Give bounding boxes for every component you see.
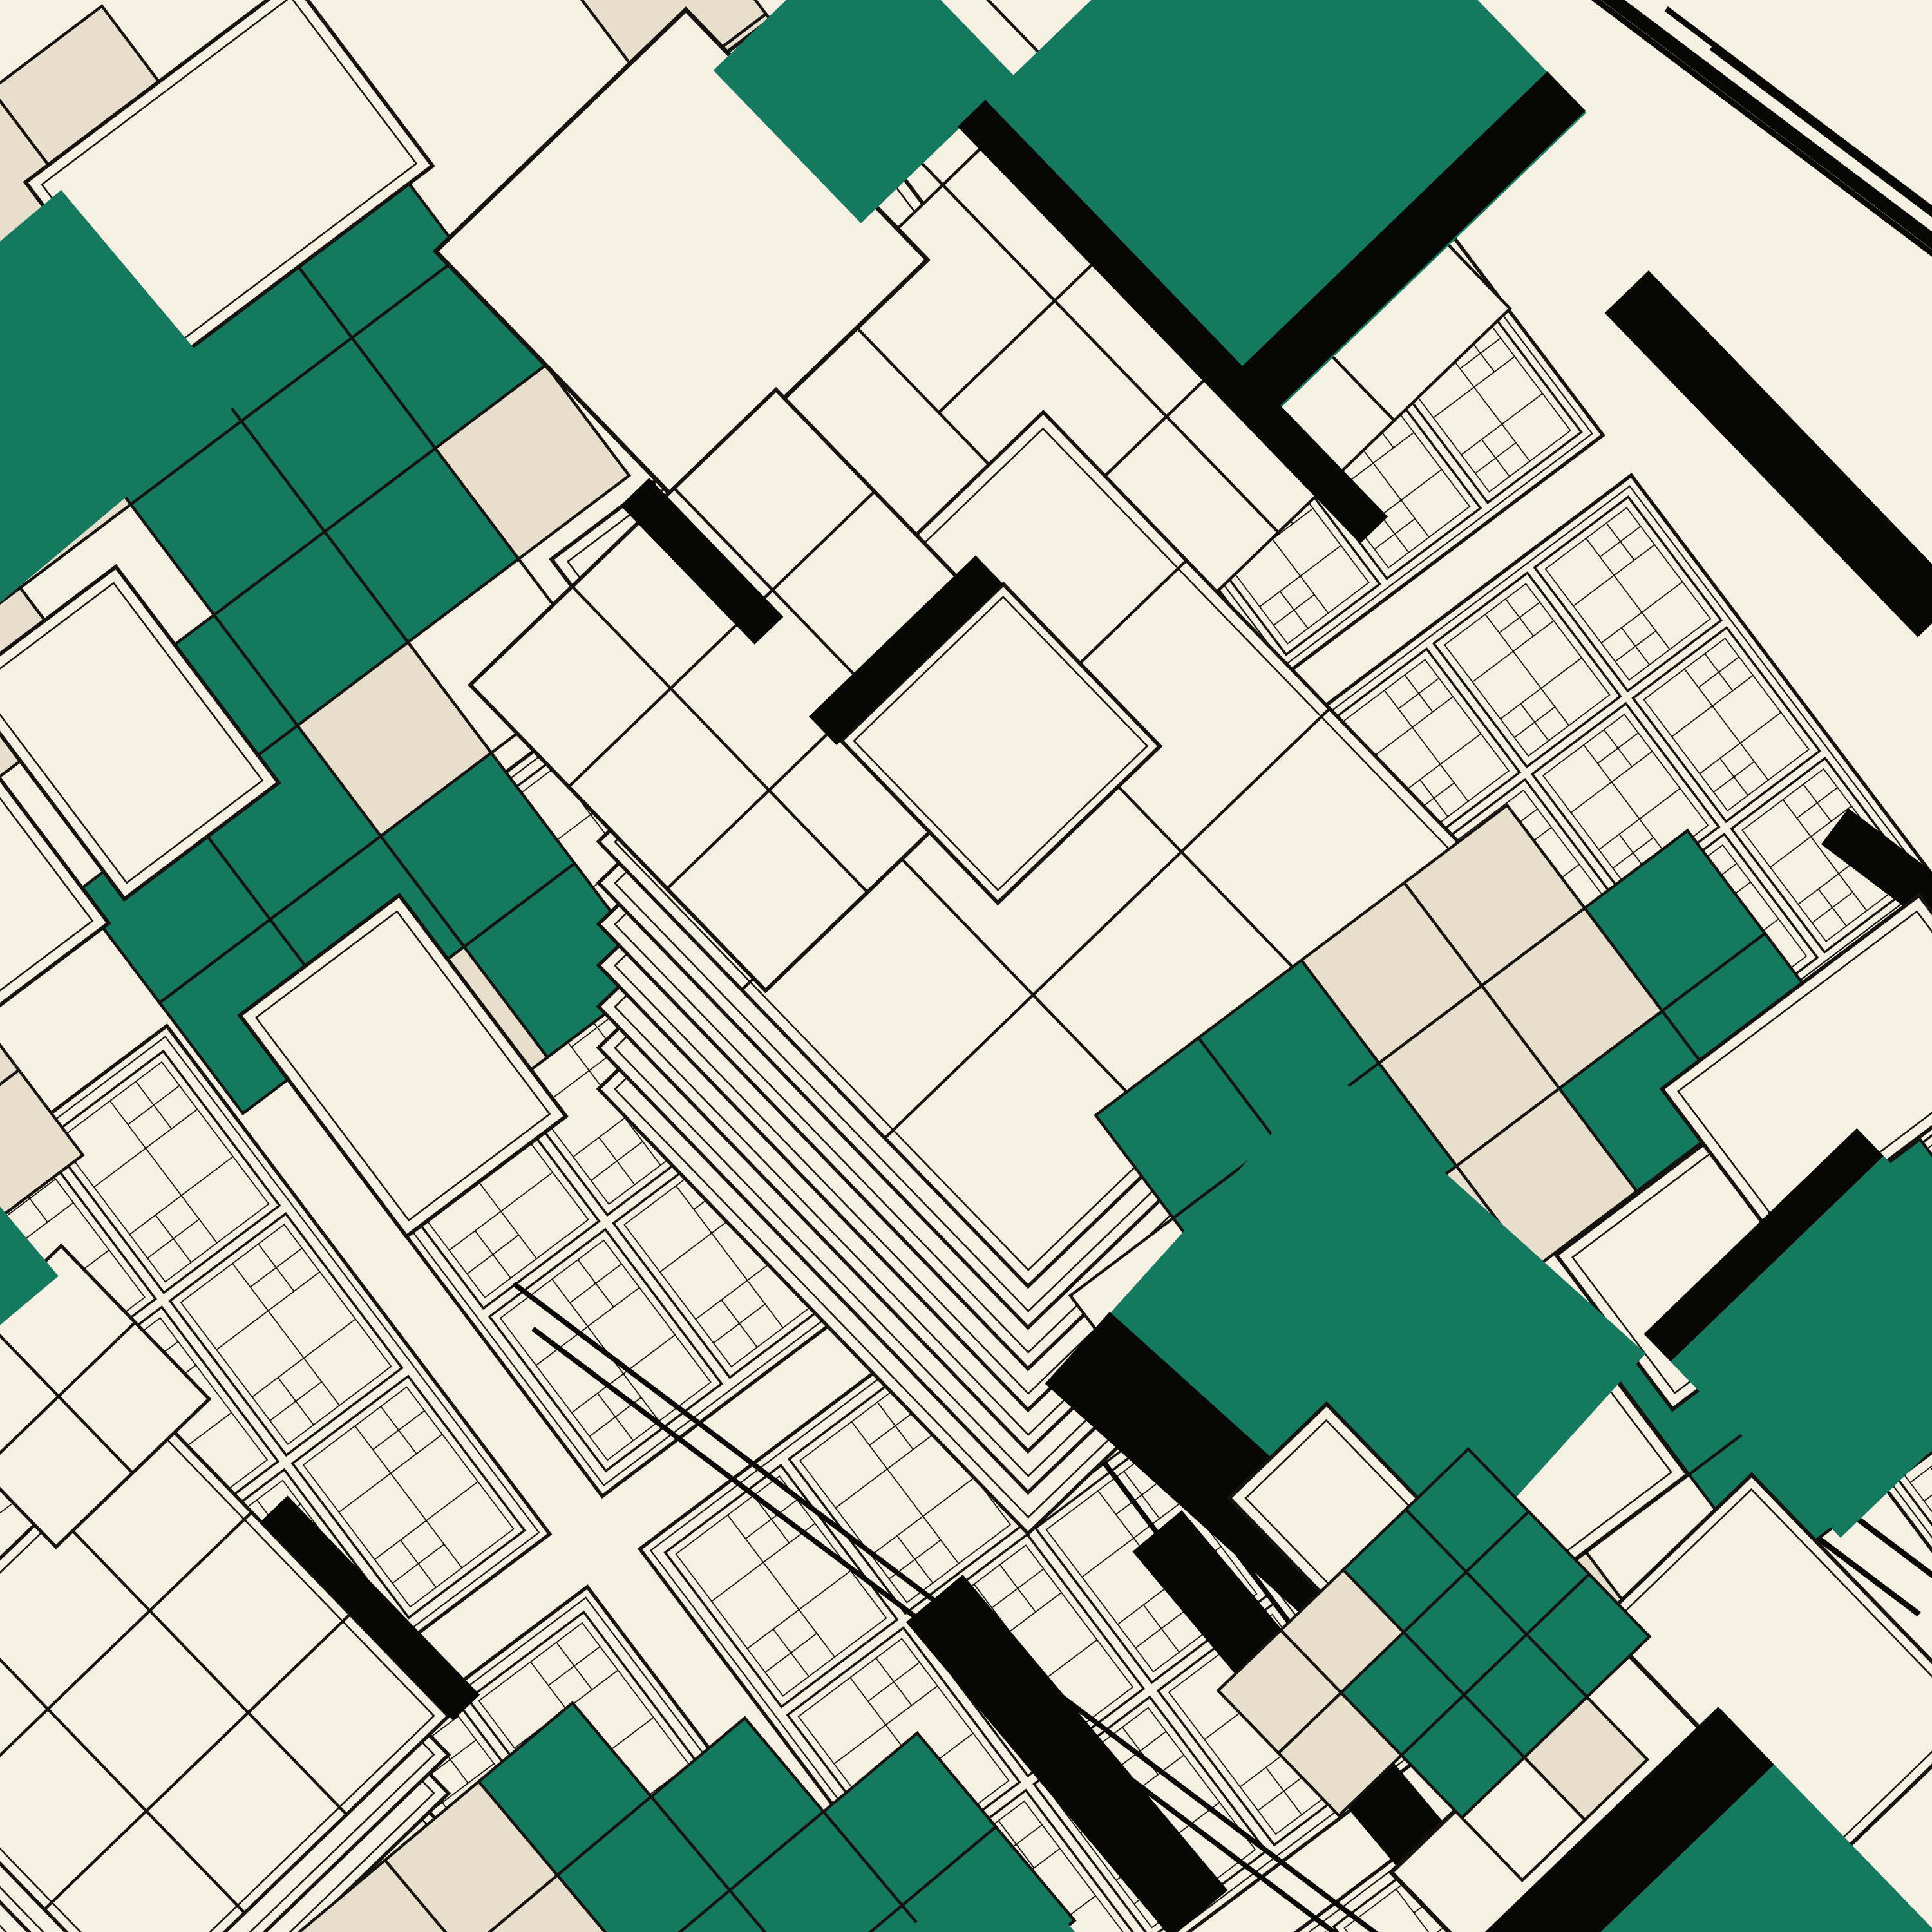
generative-isometric-pattern-canvas (0, 0, 1932, 1932)
scene-root (0, 0, 1932, 1932)
